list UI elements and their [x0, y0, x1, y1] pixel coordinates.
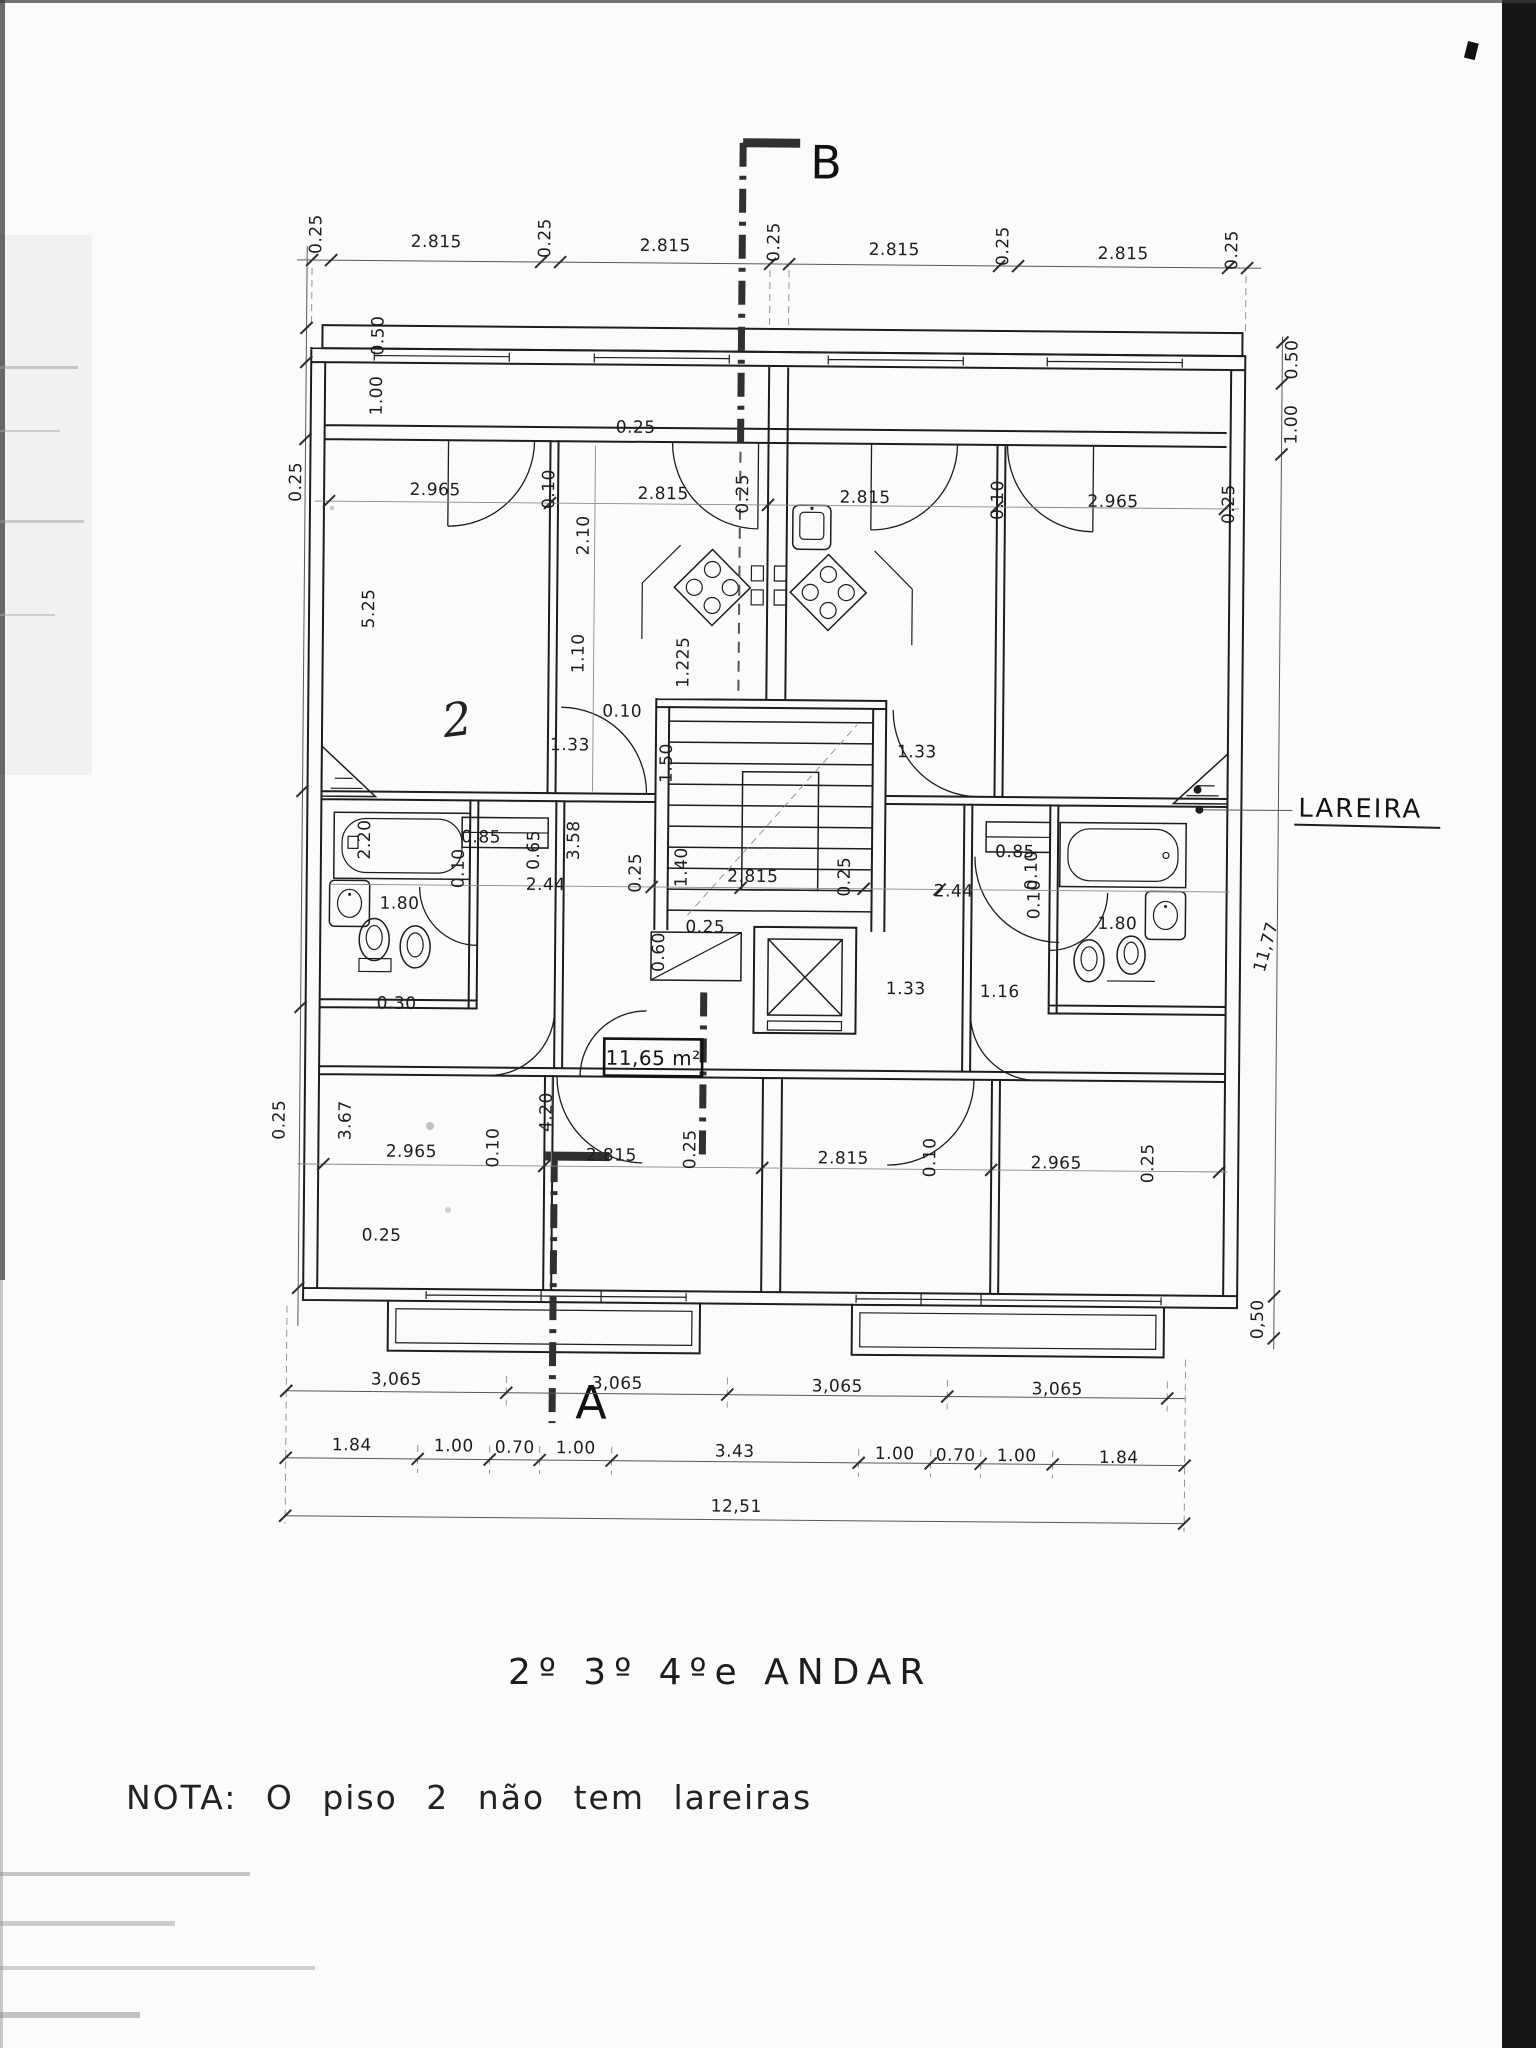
scan-streak — [0, 2012, 140, 2018]
dim-label: 0.25 — [286, 462, 306, 502]
dim-label: 2.815 — [818, 1148, 869, 1168]
dim-label: 3,065 — [371, 1370, 422, 1390]
dim-label: 2.815 — [869, 240, 920, 260]
dim-label: 0.30 — [377, 994, 417, 1014]
dim-label: 1.80 — [1097, 914, 1137, 934]
section-label-b: B — [810, 135, 842, 189]
dim-label: 3.67 — [335, 1100, 355, 1140]
lareira-callout: LAREIRA — [1195, 793, 1440, 828]
dim-label: 0.25 — [306, 214, 326, 254]
dim-label: 1.00 — [1282, 405, 1302, 445]
dim-label: 2.20 — [355, 819, 375, 859]
dim-label: 2.815 — [727, 867, 778, 887]
fireplace-left — [321, 746, 375, 796]
dim-label: 1.00 — [875, 1444, 915, 1464]
floor-plan-scan: B A 11,65 m² 2 LAREIRA — [0, 0, 1536, 2048]
dim-label: 0.50 — [368, 316, 388, 356]
dim-label: 3,065 — [1032, 1379, 1083, 1399]
floor-plan-drawing: B A 11,65 m² 2 LAREIRA — [266, 131, 1446, 1534]
dim-label: 1.50 — [657, 743, 677, 783]
dim-label: 2.965 — [409, 480, 460, 500]
scan-streak — [0, 1921, 175, 1926]
dim-label: 1.80 — [380, 894, 420, 914]
dim-label: 11,77 — [1250, 920, 1283, 975]
door-arcs — [417, 440, 1111, 1167]
dim-label: 0.85 — [461, 827, 501, 847]
dimension-labels: 0.25 2.815 0.25 2.815 0.25 2.815 0.25 2.… — [266, 214, 1303, 1522]
dim-label: 2.965 — [1087, 492, 1138, 512]
kitchen-sink — [793, 505, 831, 549]
scan-mark — [1464, 41, 1479, 60]
dim-label: 1.00 — [367, 376, 387, 416]
dim-label: 2.815 — [637, 484, 688, 504]
dim-label: 0.10 — [483, 1128, 503, 1168]
dim-label: 3,065 — [592, 1373, 643, 1393]
dim-label: 1.84 — [332, 1435, 372, 1455]
dim-label: 0.25 — [626, 853, 646, 893]
bidet-left-icon — [400, 926, 430, 968]
drawing-note: NOTA: O piso 2 não tem lareiras — [126, 1778, 812, 1817]
toilet-right-icon — [1074, 940, 1104, 982]
dim-label: 0.25 — [764, 222, 784, 262]
kitchen-counter-boxes — [751, 566, 786, 605]
dim-label: 0.25 — [680, 1129, 700, 1169]
dim-label: 5.25 — [359, 588, 379, 628]
dim-label: 2.815 — [586, 1145, 637, 1165]
dim-label: 0.25 — [685, 917, 725, 937]
fireplace-right — [1173, 754, 1227, 804]
dim-label: 1.33 — [897, 742, 937, 762]
elevator — [753, 927, 856, 1034]
dim-label: 2.10 — [574, 515, 594, 555]
scan-streak — [0, 1872, 250, 1876]
dim-label: 0.25 — [733, 474, 753, 514]
dim-label: 0.25 — [1138, 1143, 1158, 1183]
scan-stain — [330, 506, 335, 511]
dim-label: 1.40 — [672, 847, 692, 887]
dim-label: 0.10 — [449, 848, 469, 888]
dim-label: 2.815 — [1098, 244, 1149, 264]
scanner-edge-left-lower — [0, 1280, 3, 2048]
scan-stain — [426, 1122, 434, 1130]
dim-label: 0.25 — [269, 1100, 289, 1140]
bottom-balcony-left — [388, 1301, 700, 1354]
dim-label: 0.10 — [920, 1137, 940, 1177]
dim-label: 1.225 — [673, 637, 693, 688]
dim-label: 1.33 — [886, 979, 926, 999]
dim-label: 2.815 — [640, 236, 691, 256]
scan-streak — [0, 1966, 315, 1970]
lareira-label: LAREIRA — [1298, 794, 1422, 825]
dim-label: 2.44 — [526, 875, 566, 895]
dim-label: 0.25 — [1222, 230, 1242, 270]
handwritten-mark: 2 — [438, 691, 475, 748]
dim-label: 1.00 — [997, 1446, 1037, 1466]
dim-label-total-width: 12,51 — [711, 1497, 762, 1517]
dim-label: 0.60 — [649, 932, 669, 972]
dim-label: 2.815 — [839, 488, 890, 508]
dim-label: 1.00 — [434, 1436, 474, 1456]
dim-label: 0.10 — [539, 469, 559, 509]
bottom-balcony-right — [852, 1305, 1164, 1358]
dim-label: 2.815 — [411, 232, 462, 252]
dim-label: 1.10 — [569, 633, 589, 673]
dim-label: 0.10 — [988, 480, 1008, 520]
dim-label: 2.44 — [934, 881, 974, 901]
kitchen-stove-left — [642, 545, 751, 640]
scan-streak — [0, 520, 84, 523]
dim-label: 0,50 — [1248, 1299, 1268, 1339]
dim-label: 0.25 — [535, 218, 555, 258]
dim-label: 0.70 — [495, 1438, 535, 1458]
dim-label: 0.10 — [1024, 879, 1044, 919]
scan-streak — [0, 366, 78, 369]
area-box: 11,65 m² — [604, 1039, 702, 1077]
scanner-edge-right — [1502, 0, 1536, 2048]
dim-label: 0.50 — [1282, 340, 1302, 380]
dim-label: 1.16 — [980, 982, 1020, 1002]
drawing-title: 2º 3º 4ºe ANDAR — [508, 1652, 932, 1693]
dim-label: 2.965 — [386, 1142, 437, 1162]
dim-label: 0.25 — [835, 857, 855, 897]
kitchen-stove-right — [790, 550, 913, 645]
scan-shadow-band — [0, 235, 92, 775]
dim-label: 2.965 — [1031, 1153, 1082, 1173]
scan-streak — [0, 430, 60, 432]
dim-label: 4.20 — [537, 1092, 557, 1132]
area-label: 11,65 m² — [606, 1046, 701, 1071]
dim-label: 3,065 — [812, 1376, 863, 1396]
scan-streak — [0, 614, 55, 616]
dim-label: 0.10 — [602, 702, 642, 722]
scanner-edge-top — [0, 0, 1536, 3]
dim-label: 1.33 — [550, 735, 590, 755]
dim-label: 0.25 — [616, 418, 656, 438]
scan-stain — [445, 1207, 451, 1213]
extension-lines — [285, 266, 1246, 1532]
dim-label: 1.84 — [1099, 1448, 1139, 1468]
dim-label: 1.00 — [556, 1438, 596, 1458]
dim-label: 3.43 — [715, 1442, 755, 1462]
dim-label: 0.65 — [524, 830, 544, 870]
toilet-left-icon — [359, 918, 389, 960]
dim-label: 0.25 — [362, 1225, 402, 1245]
dim-label: 0.70 — [936, 1445, 976, 1465]
sink-right-icon — [1145, 891, 1185, 939]
dim-label: 0.25 — [993, 226, 1013, 266]
dim-label: 3.58 — [564, 820, 584, 860]
sink-left-icon — [329, 880, 369, 926]
dim-label: 0.25 — [1219, 484, 1239, 524]
